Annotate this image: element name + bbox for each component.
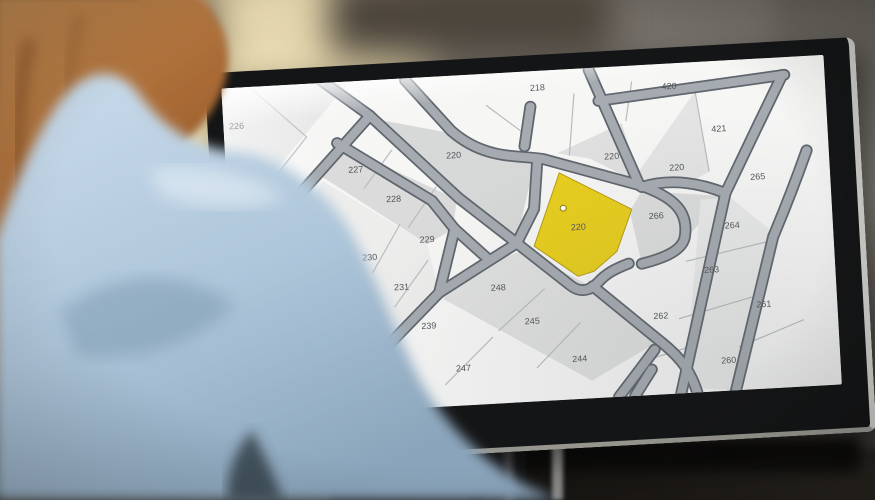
monitor: 2262184204212652272202282202202662642292… xyxy=(204,37,875,468)
parcel-label: 218 xyxy=(530,82,546,93)
parcel-label: 247 xyxy=(456,363,472,374)
parcel-label: 226 xyxy=(229,121,245,132)
parcel-label: 230 xyxy=(362,252,378,263)
parcel-label: 264 xyxy=(724,220,740,231)
cadastral-map: 2262184204212652272202282202202662642292… xyxy=(221,55,841,418)
parcel-label: 262 xyxy=(653,310,669,321)
parcel-label: 220 xyxy=(669,162,685,173)
parcel-label: 421 xyxy=(711,123,727,134)
parcel-label: 228 xyxy=(386,194,402,205)
parcel-label: 231 xyxy=(394,282,410,293)
blurred-shelf xyxy=(330,0,610,55)
dark-furniture-corner xyxy=(0,0,210,110)
parcel-label: 263 xyxy=(704,264,720,275)
parcel-label: 248 xyxy=(490,282,506,293)
parcel-label: 229 xyxy=(419,234,435,245)
parcel-label: 261 xyxy=(756,299,772,310)
parcel-label: 265 xyxy=(750,171,766,182)
highlighted-parcel-label: 220 xyxy=(571,222,587,233)
parcel-label: 260 xyxy=(721,355,737,366)
parcel-label: 266 xyxy=(648,210,664,221)
parcel-label: 227 xyxy=(348,164,364,175)
selection-dot xyxy=(560,205,566,211)
screen: 2262184204212652272202282202202662642292… xyxy=(221,55,841,418)
parcel-label: 245 xyxy=(524,316,540,327)
parcel-label: 239 xyxy=(421,320,437,331)
selection-marker-dot xyxy=(560,205,566,211)
office-photo-scene: 2262184204212652272202282202202662642292… xyxy=(0,0,875,500)
parcel-label: 420 xyxy=(661,81,677,92)
parcel-label: 244 xyxy=(572,353,588,364)
parcel-label: 220 xyxy=(604,151,620,162)
parcel-label: 220 xyxy=(446,150,462,161)
